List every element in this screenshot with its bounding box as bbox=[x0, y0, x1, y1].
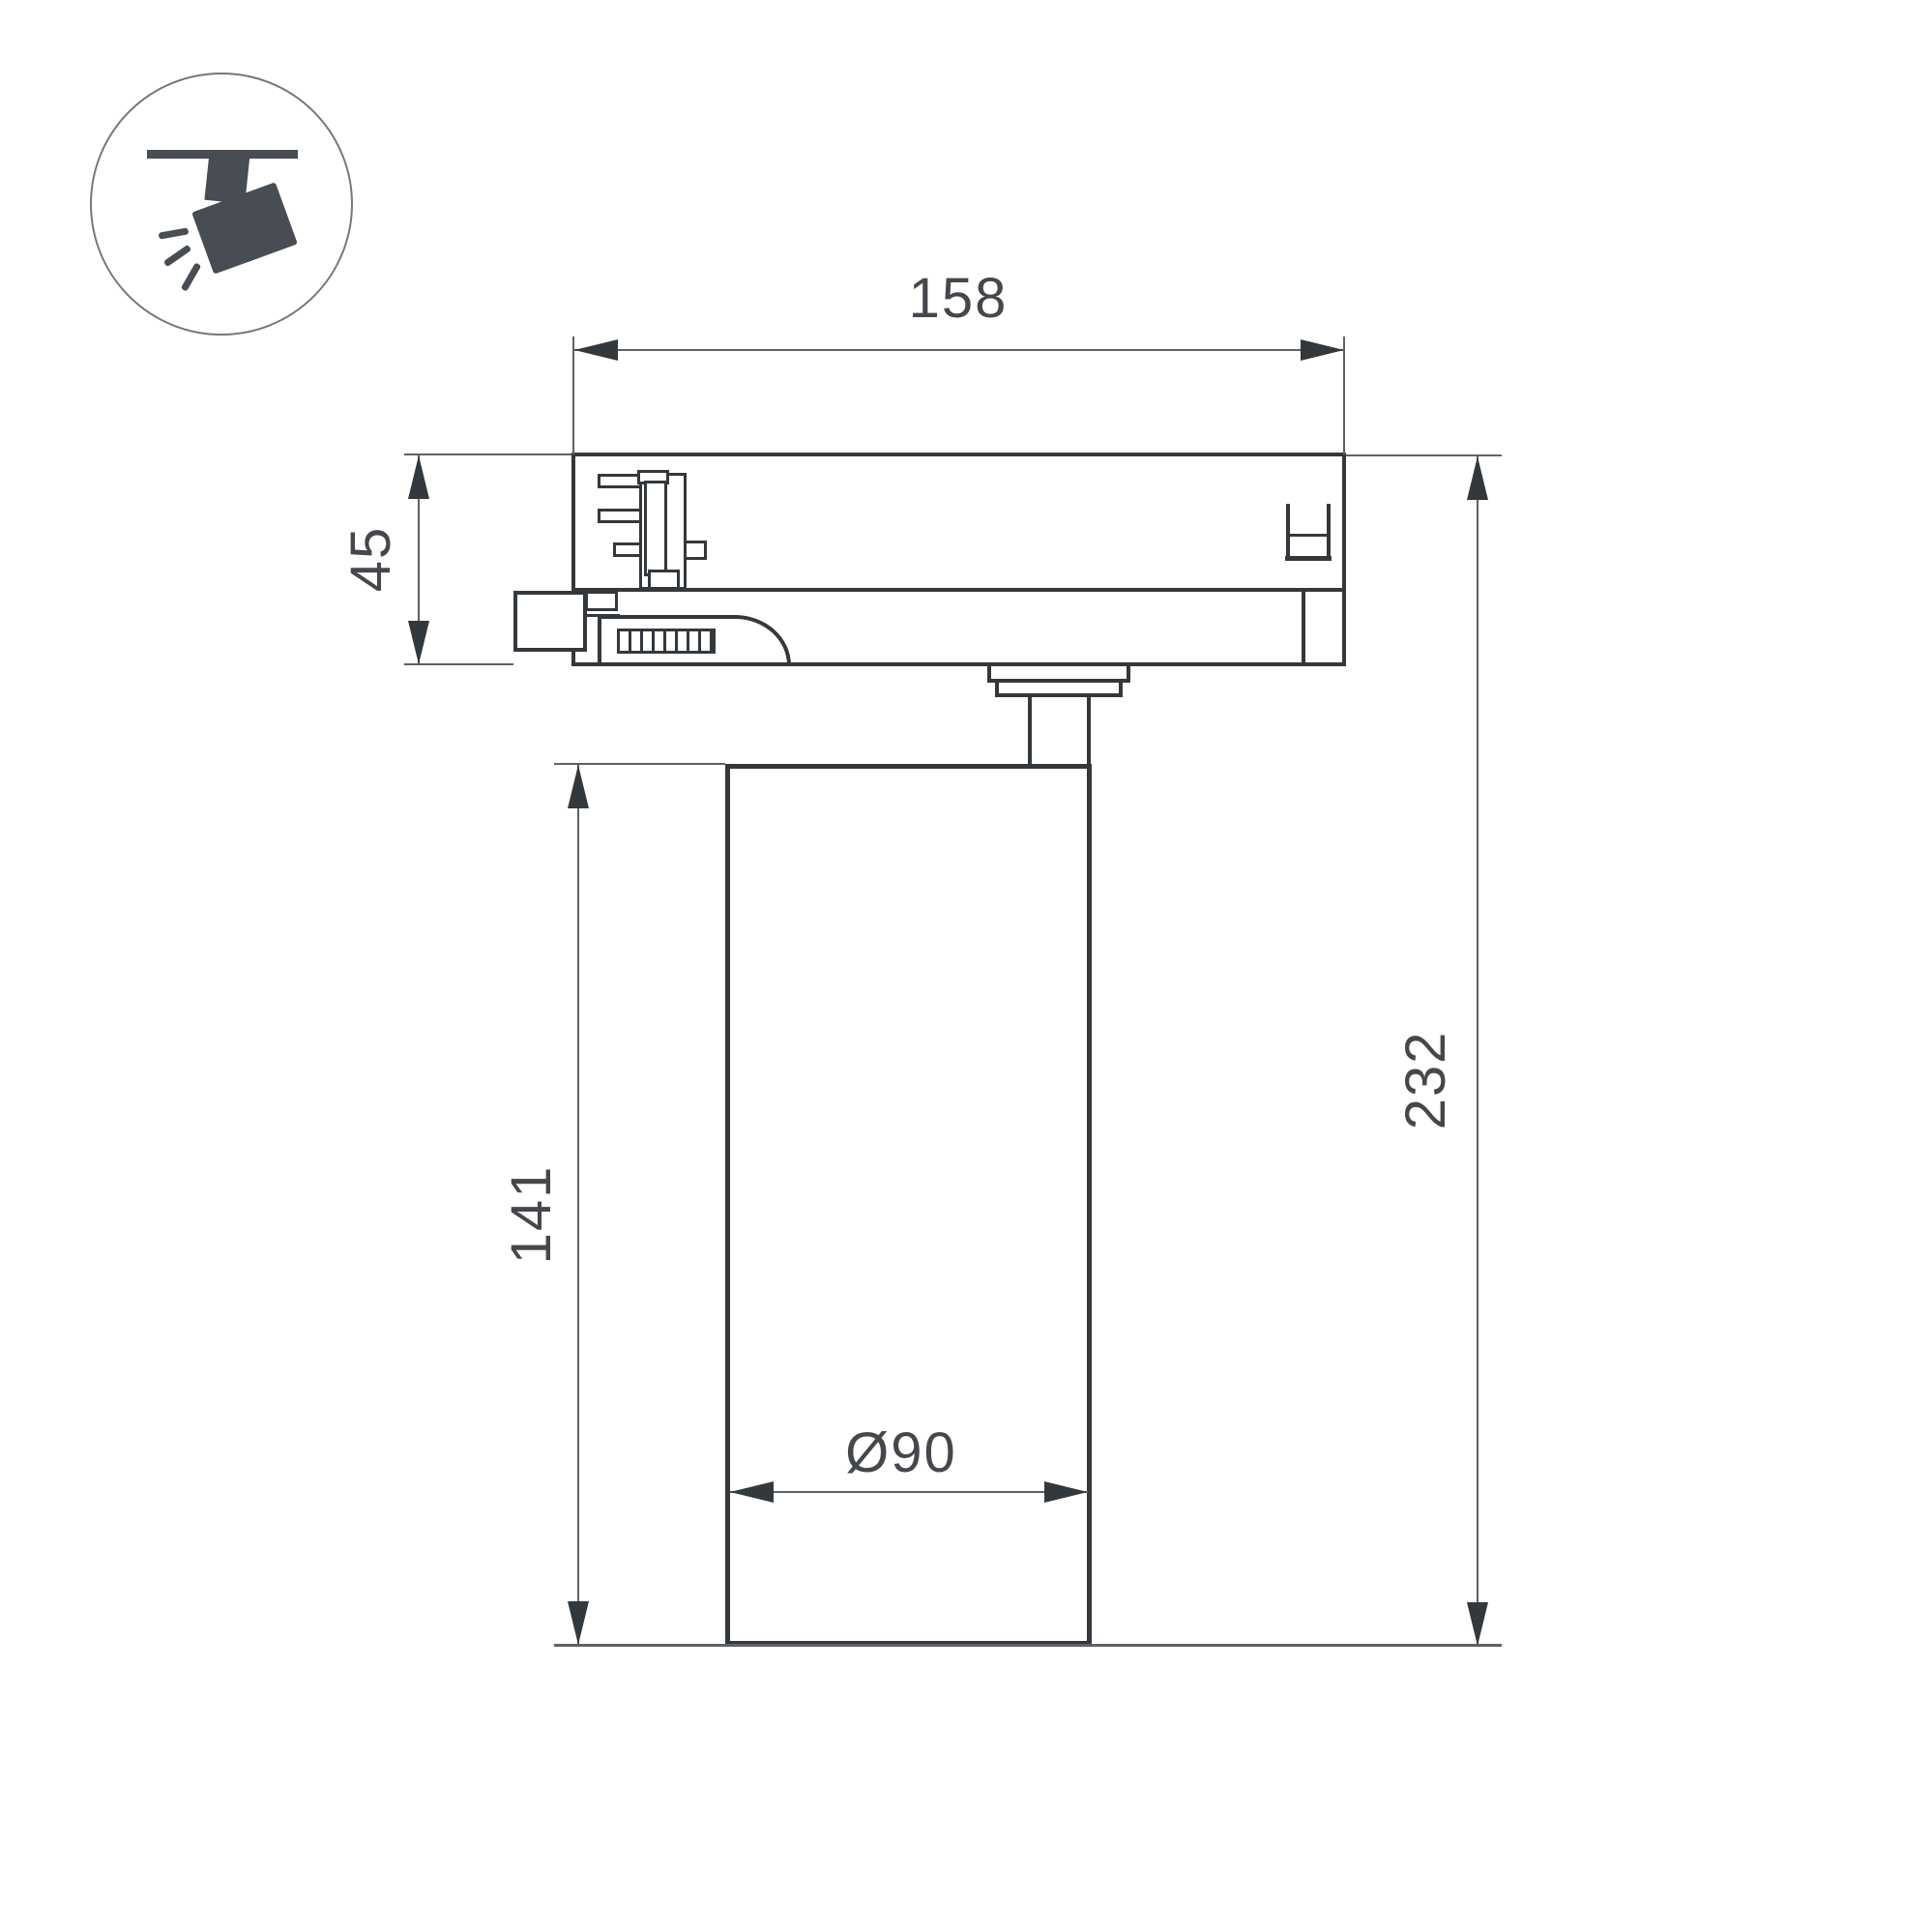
dim-overall-height-label: 232 bbox=[1398, 1003, 1452, 1157]
arrowhead bbox=[408, 455, 429, 499]
technical-drawing-canvas: 158 45 141 232 Ø90 bbox=[0, 0, 1932, 1932]
ribbed-grip bbox=[617, 629, 716, 654]
dim-diameter-label: Ø90 bbox=[805, 1425, 998, 1479]
adapter-endcap-line bbox=[1302, 592, 1305, 662]
baseline-extension-line bbox=[554, 1644, 1502, 1647]
arrowhead bbox=[1467, 456, 1488, 500]
arrowhead bbox=[1467, 1602, 1488, 1646]
arrowhead bbox=[568, 765, 589, 808]
latch-detail bbox=[585, 591, 618, 611]
track-clip bbox=[1290, 534, 1327, 537]
track-clip bbox=[1285, 556, 1332, 561]
contact-strip bbox=[644, 481, 667, 576]
light-ray-icon bbox=[163, 245, 191, 268]
lamp-body bbox=[725, 764, 1092, 1646]
contact-foot bbox=[648, 570, 680, 590]
arrowhead bbox=[1301, 339, 1344, 361]
dim-adapter-height-label: 45 bbox=[343, 501, 397, 617]
adapter-upper-box bbox=[571, 453, 1346, 592]
track-spotlight-icon bbox=[90, 73, 353, 336]
dim-overall-height-line bbox=[1477, 456, 1478, 1645]
dim-adapter-width-label: 158 bbox=[862, 271, 1055, 325]
light-ray-icon bbox=[181, 262, 202, 291]
dim-body-height-line bbox=[577, 765, 579, 1644]
track-clip bbox=[1327, 504, 1331, 561]
latch-detail-line bbox=[583, 614, 620, 617]
pivot-stem bbox=[1028, 693, 1091, 768]
arrowhead bbox=[408, 621, 429, 664]
dim-diameter-line bbox=[730, 1491, 1088, 1493]
light-ray-icon bbox=[159, 227, 190, 239]
arrowhead bbox=[1044, 1481, 1088, 1503]
arrowhead bbox=[730, 1481, 774, 1503]
release-latch bbox=[513, 591, 587, 652]
dim-adapter-width-line bbox=[574, 349, 1344, 351]
track-clip bbox=[1286, 504, 1290, 561]
arrowhead bbox=[568, 1601, 589, 1645]
contact-tab bbox=[684, 541, 707, 560]
arrowhead bbox=[574, 339, 618, 361]
dim-body-height-label: 141 bbox=[504, 1137, 558, 1292]
